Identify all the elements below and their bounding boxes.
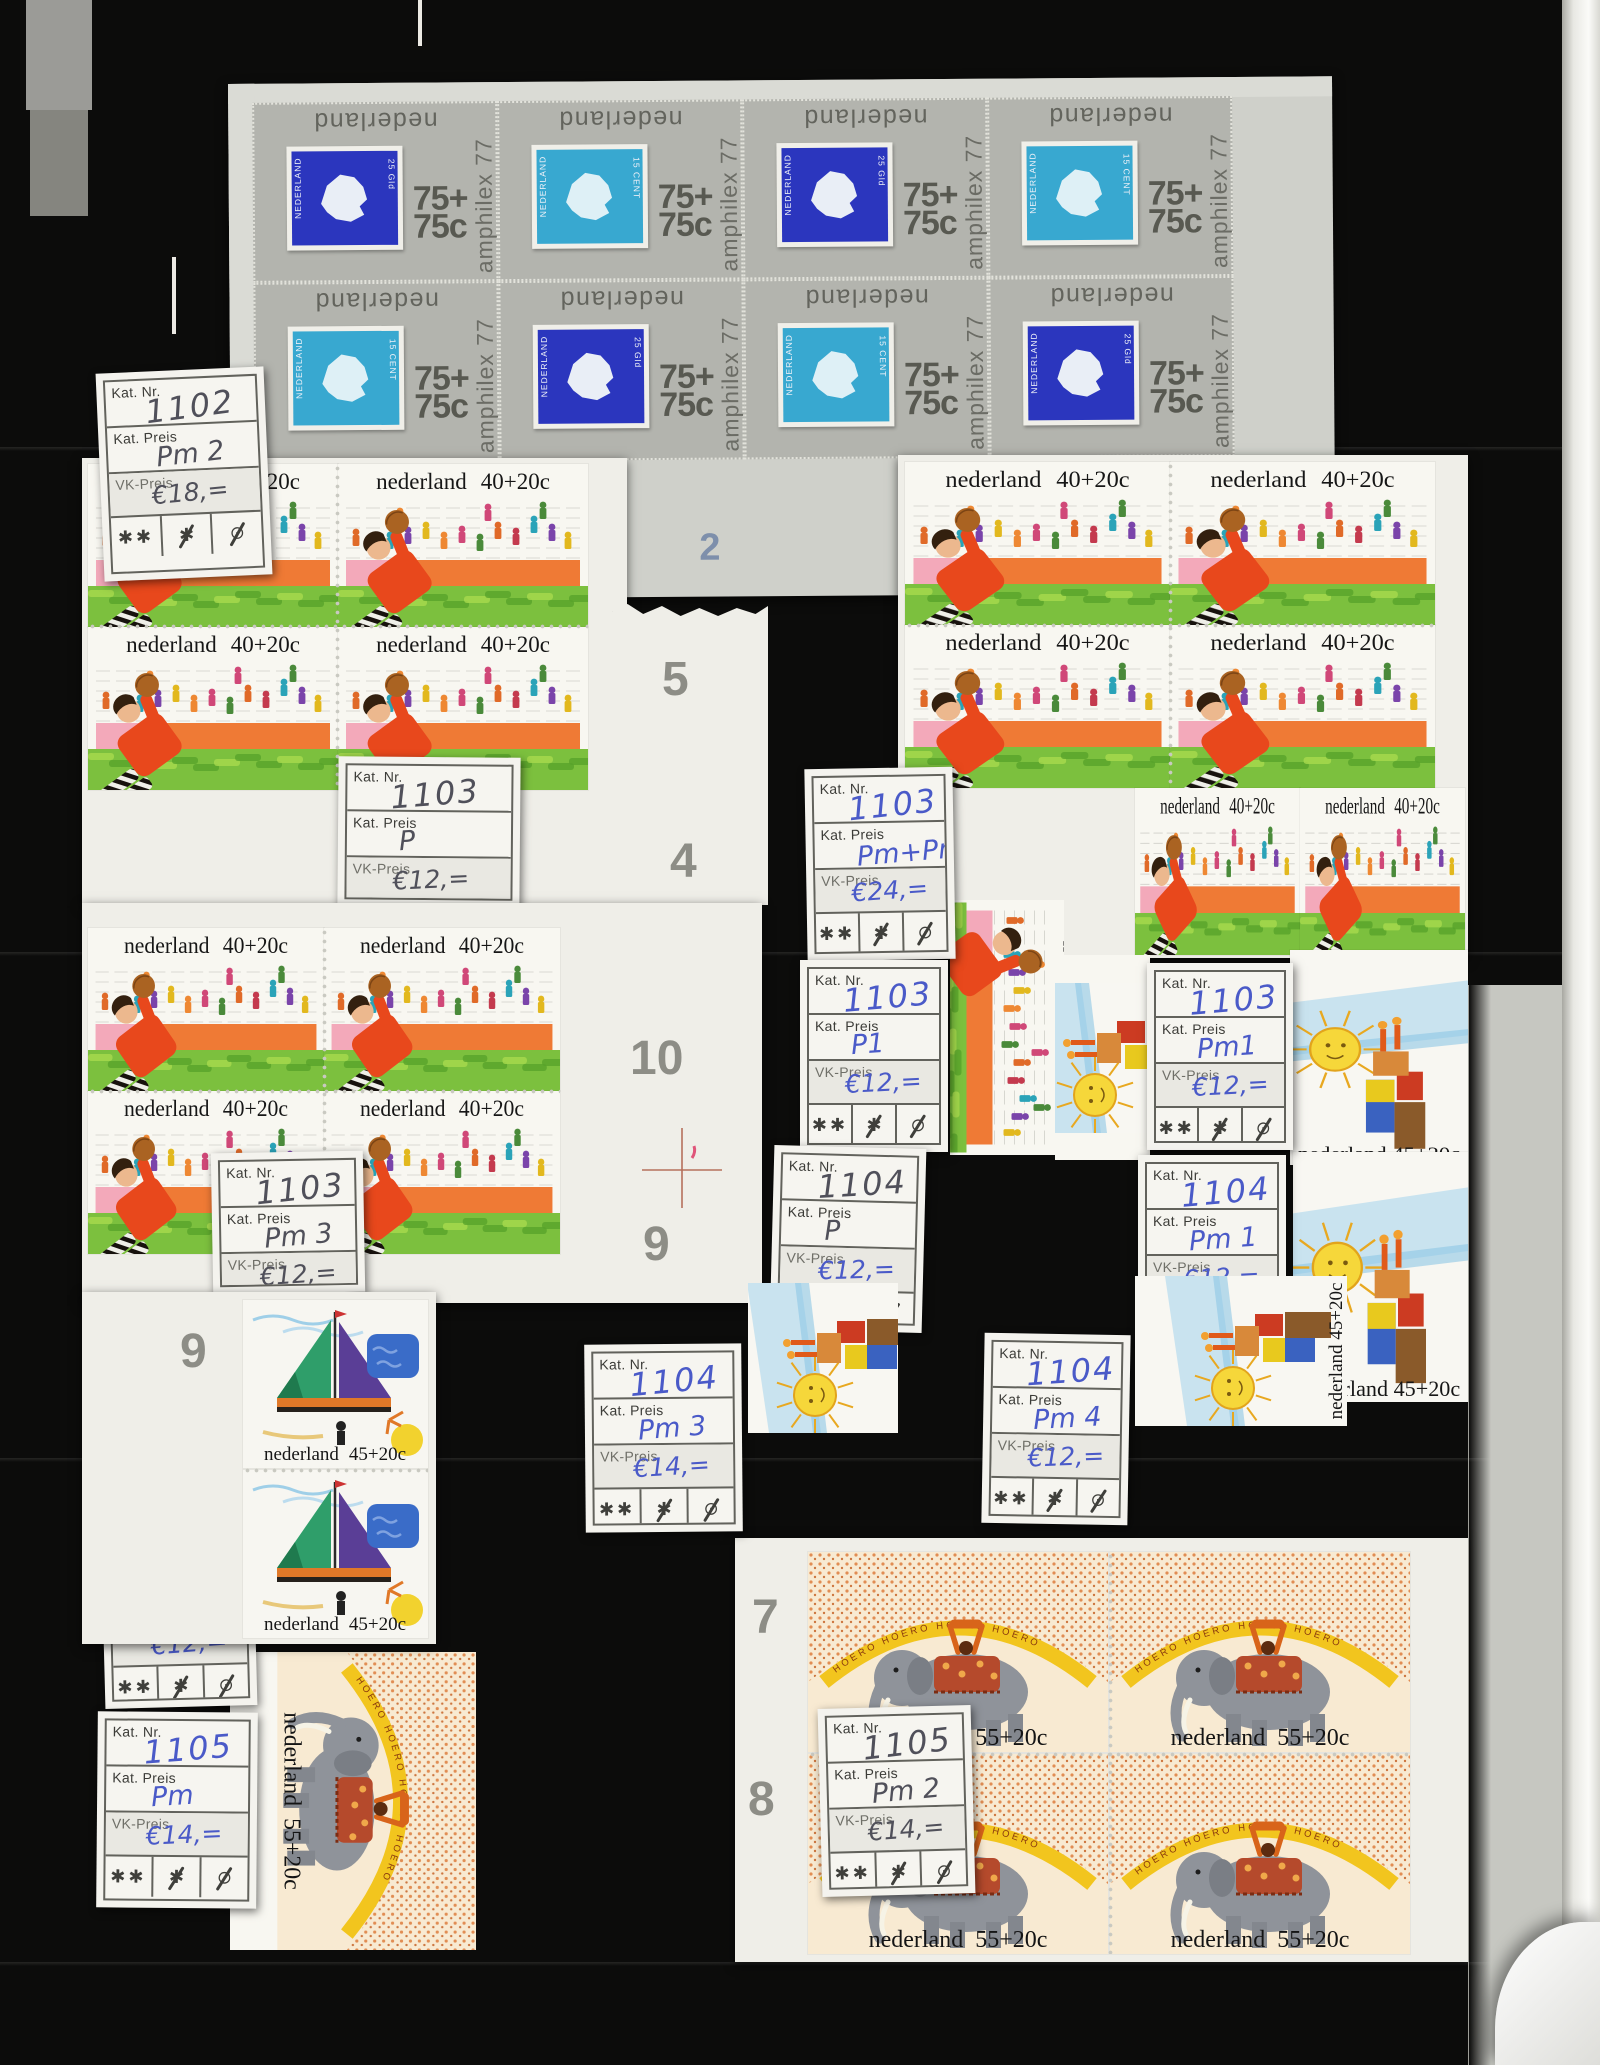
- vk-preis-value: €14,=: [145, 1818, 223, 1850]
- amphilex-series-text: amphilex 77: [715, 107, 743, 271]
- inner-value-text: 25 Gld: [877, 155, 887, 186]
- sheet-margin-number: 4: [670, 838, 697, 886]
- football-stamp-40-20c: nederland40+20c: [88, 928, 324, 1091]
- perforation: [88, 1089, 560, 1094]
- svg-text:nederland40+20c: nederland40+20c: [945, 631, 1129, 656]
- inner-country-text: NEDERLAND: [783, 154, 793, 216]
- amphilex-stamp-15cent: nederland NEDERLAND 15 CENT 75+75c amphi…: [987, 96, 1233, 278]
- catalog-label-1103-pm-pm2: Kat. Nr. 1103 Kat. Preis Pm+Pm2 VK-Preis…: [804, 767, 955, 962]
- svg-text:nederland40+20c: nederland40+20c: [1325, 793, 1440, 819]
- perforation: [243, 1468, 428, 1473]
- vk-preis-value: €12,=: [1191, 1069, 1269, 1102]
- amphilex-stamp-25gld: nederland NEDERLAND 25 Gld 75+75c amphil…: [252, 101, 498, 283]
- football-stamp-40-20c: nederland40+20c: [1135, 788, 1300, 955]
- amphilex-series-text: amphilex 77: [470, 109, 498, 273]
- svg-text:nederland40+20c: nederland40+20c: [1210, 631, 1394, 656]
- football-stamp-art: nederland40+20c: [338, 464, 588, 627]
- svg-text:nederland40+20c: nederland40+20c: [126, 632, 300, 657]
- catalog-label-1103-p1: Kat. Nr. 1103 Kat. Preis P1 VK-Preis €12…: [800, 960, 948, 1152]
- sun-blocks-stamp-45-20c: nederland 45+20c: [1290, 950, 1468, 1165]
- sun-blocks-stamp-art: nederland 45+20c: [748, 1283, 898, 1433]
- football-stamp-art: nederland40+20c: [1170, 462, 1435, 625]
- mint-symbol: ✱✱: [118, 526, 155, 549]
- football-stamp-art: nederland40+20c: [1170, 625, 1435, 788]
- football-stamp-art: nederland40+20c: [88, 627, 338, 790]
- amphilex-stamp-25gld: nederland NEDERLAND 25 Gld 75+75c amphil…: [742, 98, 988, 280]
- mint-symbol: ✱✱: [812, 1115, 848, 1136]
- vk-preis-value: €12,=: [1027, 1441, 1105, 1473]
- football-corner-block-sheet: nederland40+20c nederland40+20c nederlan…: [82, 903, 762, 1303]
- football-stamp-art: nederland40+20c: [905, 462, 1170, 625]
- queen-silhouette: [799, 340, 874, 410]
- svg-text:nederland40+20c: nederland40+20c: [124, 1095, 288, 1121]
- stamp-on-stamp: NEDERLAND 25 Gld: [1023, 321, 1140, 426]
- svg-text:nederland40+20c: nederland40+20c: [1160, 793, 1275, 819]
- mint-symbol: ✱✱: [117, 1676, 154, 1698]
- amphilex-country-text: nederland: [523, 284, 719, 314]
- kat-preis-value: P1: [850, 1028, 886, 1061]
- queen-silhouette: [554, 341, 629, 411]
- inner-value-text: 25 Gld: [633, 337, 643, 368]
- inner-value-text: 15 CENT: [1122, 153, 1132, 195]
- svg-text:nederland40+20c: nederland40+20c: [360, 932, 524, 958]
- inner-country-text: NEDERLAND: [538, 155, 548, 217]
- amphilex-stamp-15cent: nederland NEDERLAND 15 CENT 75+75c amphi…: [743, 278, 989, 460]
- vk-preis-value: €14,=: [632, 1450, 710, 1484]
- football-stamp-art: nederland40+20c: [1135, 788, 1300, 955]
- inner-value-text: 15 CENT: [632, 157, 642, 199]
- amphilex-value-text: 75+75c: [659, 364, 714, 420]
- queen-silhouette: [307, 163, 382, 233]
- hinged-symbol-crossed: ✱: [173, 1675, 189, 1696]
- inner-country-text: NEDERLAND: [293, 157, 303, 219]
- sailboat-stamp-45-20c: nederland45+20c: [243, 1300, 428, 1468]
- kat-nr-value: 1103: [1188, 977, 1280, 1023]
- vk-preis-value: €12,=: [817, 1254, 894, 1285]
- amphilex-country-text: nederland: [767, 102, 963, 132]
- vk-preis-value: €12,=: [845, 1066, 923, 1099]
- sailboat-stamp-45-20c: nederland45+20c: [243, 1470, 428, 1638]
- kat-preis-caption: Kat. Preis: [787, 1203, 851, 1221]
- album-page-edge: [1468, 985, 1563, 2065]
- queen-silhouette: [309, 343, 384, 413]
- inner-value-text: 25 Gld: [1123, 333, 1133, 364]
- used-symbol-crossed: ⊙: [218, 1674, 234, 1695]
- hinged-symbol-crossed: ✱: [866, 1115, 881, 1136]
- stamp-on-stamp: NEDERLAND 25 Gld: [533, 324, 650, 429]
- mint-symbol: ✱✱: [819, 923, 856, 945]
- sheet-margin-number: 2: [699, 529, 720, 567]
- kat-preis-value: Pm 4: [1032, 1401, 1102, 1436]
- sheet-margin-number: 9: [180, 1328, 207, 1376]
- stamp-on-stamp: NEDERLAND 15 CENT: [778, 322, 895, 427]
- kat-preis-value: Pm 2: [155, 435, 226, 474]
- football-stamp-40-20c: nederland40+20c: [905, 462, 1170, 625]
- svg-text:nederland55+20c: nederland55+20c: [278, 1712, 304, 1890]
- stamp-on-stamp: NEDERLAND 15 CENT: [288, 326, 405, 431]
- catalog-label-1103-pm1: Kat. Nr. 1103 Kat. Preis Pm1 VK-Preis €1…: [1147, 963, 1293, 1150]
- amphilex-country-text: nederland: [522, 104, 718, 134]
- amphilex-value-text: 75+75c: [658, 184, 713, 240]
- catalog-label-1102: Kat. Nr. 1102 Kat. Preis Pm 2 VK-Preis €…: [96, 366, 273, 581]
- mint-symbol: ✱✱: [993, 1487, 1030, 1509]
- queen-silhouette: [1042, 158, 1117, 228]
- used-symbol-crossed: ⊙: [703, 1498, 718, 1519]
- football-stamp-40-20c: nederland40+20c: [338, 464, 588, 627]
- kat-nr-value: 1104: [628, 1358, 721, 1404]
- football-stamp-40-20c: nederland40+20c: [1170, 462, 1435, 625]
- svg-text:nederland40+20c: nederland40+20c: [124, 932, 288, 958]
- amphilex-value-text: 75+75c: [414, 365, 469, 421]
- svg-text:nederland40+20c: nederland40+20c: [376, 632, 550, 657]
- catalog-label-1103-pm3: Kat. Nr. 1103 Kat. Preis Pm 3 VK-Preis €…: [211, 1151, 365, 1295]
- catalog-label-1105-pm: Kat. Nr. 1105 Kat. Preis Pm VK-Preis €14…: [96, 1711, 258, 1908]
- svg-text:nederland40+20c: nederland40+20c: [945, 468, 1129, 493]
- amphilex-country-text: nederland: [768, 282, 964, 312]
- hinged-symbol-crossed: ✱: [1212, 1118, 1227, 1139]
- football-block-sheet-right: nederland40+20c nederland40+20c nederlan…: [898, 455, 1468, 958]
- football-stamp-art: nederland40+20c: [88, 928, 324, 1091]
- vk-preis-value: €24,=: [851, 873, 929, 907]
- used-symbol-crossed: ⊙: [217, 1867, 232, 1888]
- vk-preis-value: €14,=: [867, 1812, 946, 1847]
- elephant-stamp-55-20c: HOERO HOERO HOERO HOERO nederland55+20c: [1110, 1754, 1410, 1954]
- used-symbol-crossed: ⊙: [229, 522, 245, 544]
- vk-preis-value: €12,=: [259, 1257, 337, 1287]
- amphilex-series-text: amphilex 77: [1206, 284, 1234, 448]
- rotated-sun-stamp: nederland 45+20c: [748, 1283, 898, 1433]
- kat-preis-value: Pm 1: [1188, 1222, 1258, 1258]
- perforation: [88, 624, 588, 629]
- torn-sheet-margin: 5 4: [612, 598, 768, 905]
- kat-nr-value: 1103: [841, 974, 933, 1020]
- kat-preis-value: Pm1: [1196, 1030, 1258, 1065]
- amphilex-stamp-25gld: nederland NEDERLAND 25 Gld 75+75c amphil…: [498, 279, 744, 461]
- football-stamp-40-20c: nederland40+20c: [905, 625, 1170, 788]
- used-symbol-crossed: ⊙: [1090, 1489, 1105, 1510]
- kat-preis-value: Pm 3: [637, 1410, 708, 1446]
- kat-nr-value: 1103: [389, 772, 481, 817]
- amphilex-country-text: nederland: [277, 105, 473, 135]
- amphilex-series-text: amphilex 77: [716, 287, 744, 451]
- rotated-elephant-stamp: HOERO HOERO HOERO HOERO nederland55+20c: [230, 1652, 476, 1950]
- svg-text:nederland45+20c: nederland45+20c: [264, 1614, 406, 1635]
- inner-value-text: 25 Gld: [387, 158, 397, 189]
- used-symbol-crossed: ⊙: [936, 1860, 952, 1881]
- inner-country-text: NEDERLAND: [784, 334, 794, 396]
- rotated-sun-stamp: nederland 45+20c: [1135, 1276, 1347, 1426]
- amphilex-series-text: amphilex 77: [961, 286, 989, 450]
- svg-text:nederland40+20c: nederland40+20c: [1210, 468, 1394, 493]
- football-stamp-40-20c: nederland40+20c: [1300, 788, 1465, 955]
- sun-blocks-stamp-art: nederland 45+20c: [1135, 1276, 1347, 1426]
- elephant-stamp-55-20c: HOERO HOERO HOERO HOERO nederland55+20c: [1110, 1552, 1410, 1752]
- football-stamp-art: nederland40+20c: [905, 625, 1170, 788]
- football-stamp-40-20c: nederland40+20c: [1170, 625, 1435, 788]
- inner-value-text: 15 CENT: [878, 335, 888, 377]
- sheet-margin-number: 10: [630, 1035, 683, 1083]
- football-stamp-art: nederland40+20c: [950, 903, 1064, 1153]
- registration-cross: [642, 1128, 722, 1208]
- kat-nr-value: 1104: [816, 1163, 908, 1206]
- catalog-label-1104-pm3: Kat. Nr. 1104 Kat. Preis Pm 3 VK-Preis €…: [584, 1343, 743, 1532]
- sheet-margin-number: 5: [662, 656, 689, 704]
- mint-symbol: ✱✱: [834, 1862, 871, 1884]
- queen-silhouette: [1044, 338, 1119, 408]
- elephant-stamp-art: HOERO HOERO HOERO HOERO nederland55+20c: [1110, 1552, 1410, 1752]
- inner-country-text: NEDERLAND: [539, 335, 549, 397]
- catalog-label-1105-pm2: Kat. Nr. 1105 Kat. Preis Pm 2 VK-Preis €…: [818, 1705, 976, 1897]
- card-corner: [26, 0, 92, 110]
- inner-value-text: 15 CENT: [388, 338, 398, 380]
- hinged-symbol-crossed: ✱: [656, 1498, 671, 1519]
- card-corner: [30, 110, 88, 216]
- amphilex-country-text: nederland: [278, 285, 474, 315]
- svg-text:nederland40+20c: nederland40+20c: [376, 469, 550, 494]
- amphilex-country-text: nederland: [1012, 100, 1208, 130]
- used-symbol-crossed: ⊙: [917, 922, 932, 943]
- amphilex-series-text: amphilex 77: [1205, 104, 1233, 268]
- queen-silhouette: [797, 160, 872, 230]
- hinged-symbol-crossed: ✱: [169, 1866, 184, 1887]
- hinged-symbol-crossed: ✱: [1047, 1488, 1062, 1509]
- rotated-sun-stamp-fragment: nederland 45+20c: [1055, 955, 1150, 1160]
- hinged-symbol-crossed: ✱: [179, 524, 195, 546]
- amphilex-stamp-15cent: nederland NEDERLAND 15 CENT 75+75c amphi…: [253, 281, 499, 463]
- perforation: [905, 623, 1435, 628]
- kat-nr-value: 1104: [1025, 1349, 1117, 1393]
- amphilex-series-text: amphilex 77: [960, 106, 988, 270]
- football-stamp-art: nederland40+20c: [324, 928, 560, 1091]
- kat-preis-value: Pm 3: [263, 1218, 334, 1255]
- amphilex-value-text: 75+75c: [904, 362, 959, 418]
- catalog-label-1103-p: Kat. Nr. 1103 Kat. Preis P VK-Preis €12,…: [337, 756, 520, 908]
- queen-silhouette: [552, 161, 627, 231]
- sheet-margin-number: 7: [752, 1594, 779, 1642]
- used-symbol-crossed: ⊙: [1256, 1118, 1271, 1139]
- sailboat-stamp-art: nederland45+20c: [243, 1300, 428, 1468]
- svg-text:nederland55+20c: nederland55+20c: [869, 1927, 1048, 1953]
- sheet-edge-line: [172, 257, 176, 334]
- amphilex-value-text: 75+75c: [1149, 360, 1204, 416]
- catalog-label-1104-pm4: Kat. Nr. 1104 Kat. Preis Pm 4 VK-Preis €…: [981, 1333, 1130, 1526]
- amphilex-country-text: nederland: [1013, 280, 1209, 310]
- amphilex-series-text: amphilex 77: [471, 289, 499, 453]
- inner-country-text: NEDERLAND: [1027, 152, 1037, 214]
- sheet-edge-line: [418, 0, 422, 46]
- inner-country-text: NEDERLAND: [294, 337, 304, 399]
- football-stamp-40-20c: nederland40+20c: [324, 928, 560, 1091]
- kat-preis-value: P: [823, 1215, 841, 1247]
- mint-symbol: ✱✱: [599, 1499, 635, 1520]
- stamp-on-stamp: NEDERLAND 25 Gld: [776, 142, 893, 247]
- vk-preis-value: €12,=: [392, 863, 470, 895]
- kat-preis-value: P: [398, 825, 416, 857]
- sailboat-stamp-art: nederland45+20c: [243, 1470, 428, 1638]
- hinged-symbol-crossed: ✱: [873, 922, 888, 943]
- stockbook-page-photo: nederland NEDERLAND 25 Gld 75+75c amphil…: [0, 0, 1600, 2065]
- amphilex-value-text: 75+75c: [903, 182, 958, 238]
- kat-preis-value: Pm 2: [871, 1773, 942, 1810]
- sailboat-pair-sheet: 9 nederland45+20c nederland45+20c: [82, 1292, 436, 1644]
- stamp-on-stamp: NEDERLAND 15 CENT: [531, 144, 648, 249]
- svg-text:nederland40+20c: nederland40+20c: [360, 1095, 524, 1121]
- elephant-stamp-art: HOERO HOERO HOERO HOERO nederland55+20c: [277, 1652, 476, 1950]
- sun-blocks-stamp-art: nederland 45+20c: [1290, 950, 1468, 1165]
- mint-symbol: ✱✱: [1159, 1118, 1195, 1139]
- kat-nr-value: 1105: [142, 1727, 234, 1772]
- elephant-stamp-art: HOERO HOERO HOERO HOERO nederland55+20c: [1110, 1754, 1410, 1954]
- rotated-football-stamp: nederland40+20c: [950, 900, 1064, 1155]
- football-stamp-40-20c: nederland40+20c: [88, 627, 338, 790]
- football-stamp-art: nederland40+20c: [1300, 788, 1465, 955]
- pocket-seam: [0, 1962, 1600, 1966]
- sun-blocks-stamp-art: nederland 45+20c: [1055, 983, 1150, 1133]
- stamp-on-stamp: NEDERLAND 15 CENT: [1021, 141, 1138, 246]
- inner-country-text: NEDERLAND: [1029, 332, 1039, 394]
- amphilex-stamp-25gld: nederland NEDERLAND 25 Gld 75+75c amphil…: [988, 276, 1234, 458]
- kat-preis-value: Pm: [151, 1780, 195, 1814]
- amphilex-value-text: 75+75c: [413, 185, 468, 241]
- used-symbol-crossed: ⊙: [910, 1115, 925, 1136]
- album-page-edge: [1562, 0, 1600, 2065]
- kat-nr-value: 1104: [1179, 1169, 1271, 1215]
- sheet-margin-number: 8: [748, 1776, 775, 1824]
- stamp-on-stamp: NEDERLAND 25 Gld: [286, 146, 403, 251]
- amphilex-stamp-15cent: nederland NEDERLAND 15 CENT 75+75c amphi…: [497, 99, 743, 281]
- svg-text:nederland 45+20c: nederland 45+20c: [1326, 1283, 1347, 1420]
- svg-text:nederland55+20c: nederland55+20c: [1171, 1927, 1350, 1953]
- sheet-margin-number: 9: [643, 1221, 670, 1269]
- svg-text:nederland45+20c: nederland45+20c: [264, 1444, 406, 1465]
- amphilex-value-text: 75+75c: [1148, 180, 1203, 236]
- hinged-symbol-crossed: ✱: [891, 1861, 907, 1882]
- svg-text:nederland55+20c: nederland55+20c: [1171, 1725, 1350, 1751]
- vk-preis-value: €18,=: [151, 474, 230, 510]
- mint-symbol: ✱✱: [110, 1866, 146, 1887]
